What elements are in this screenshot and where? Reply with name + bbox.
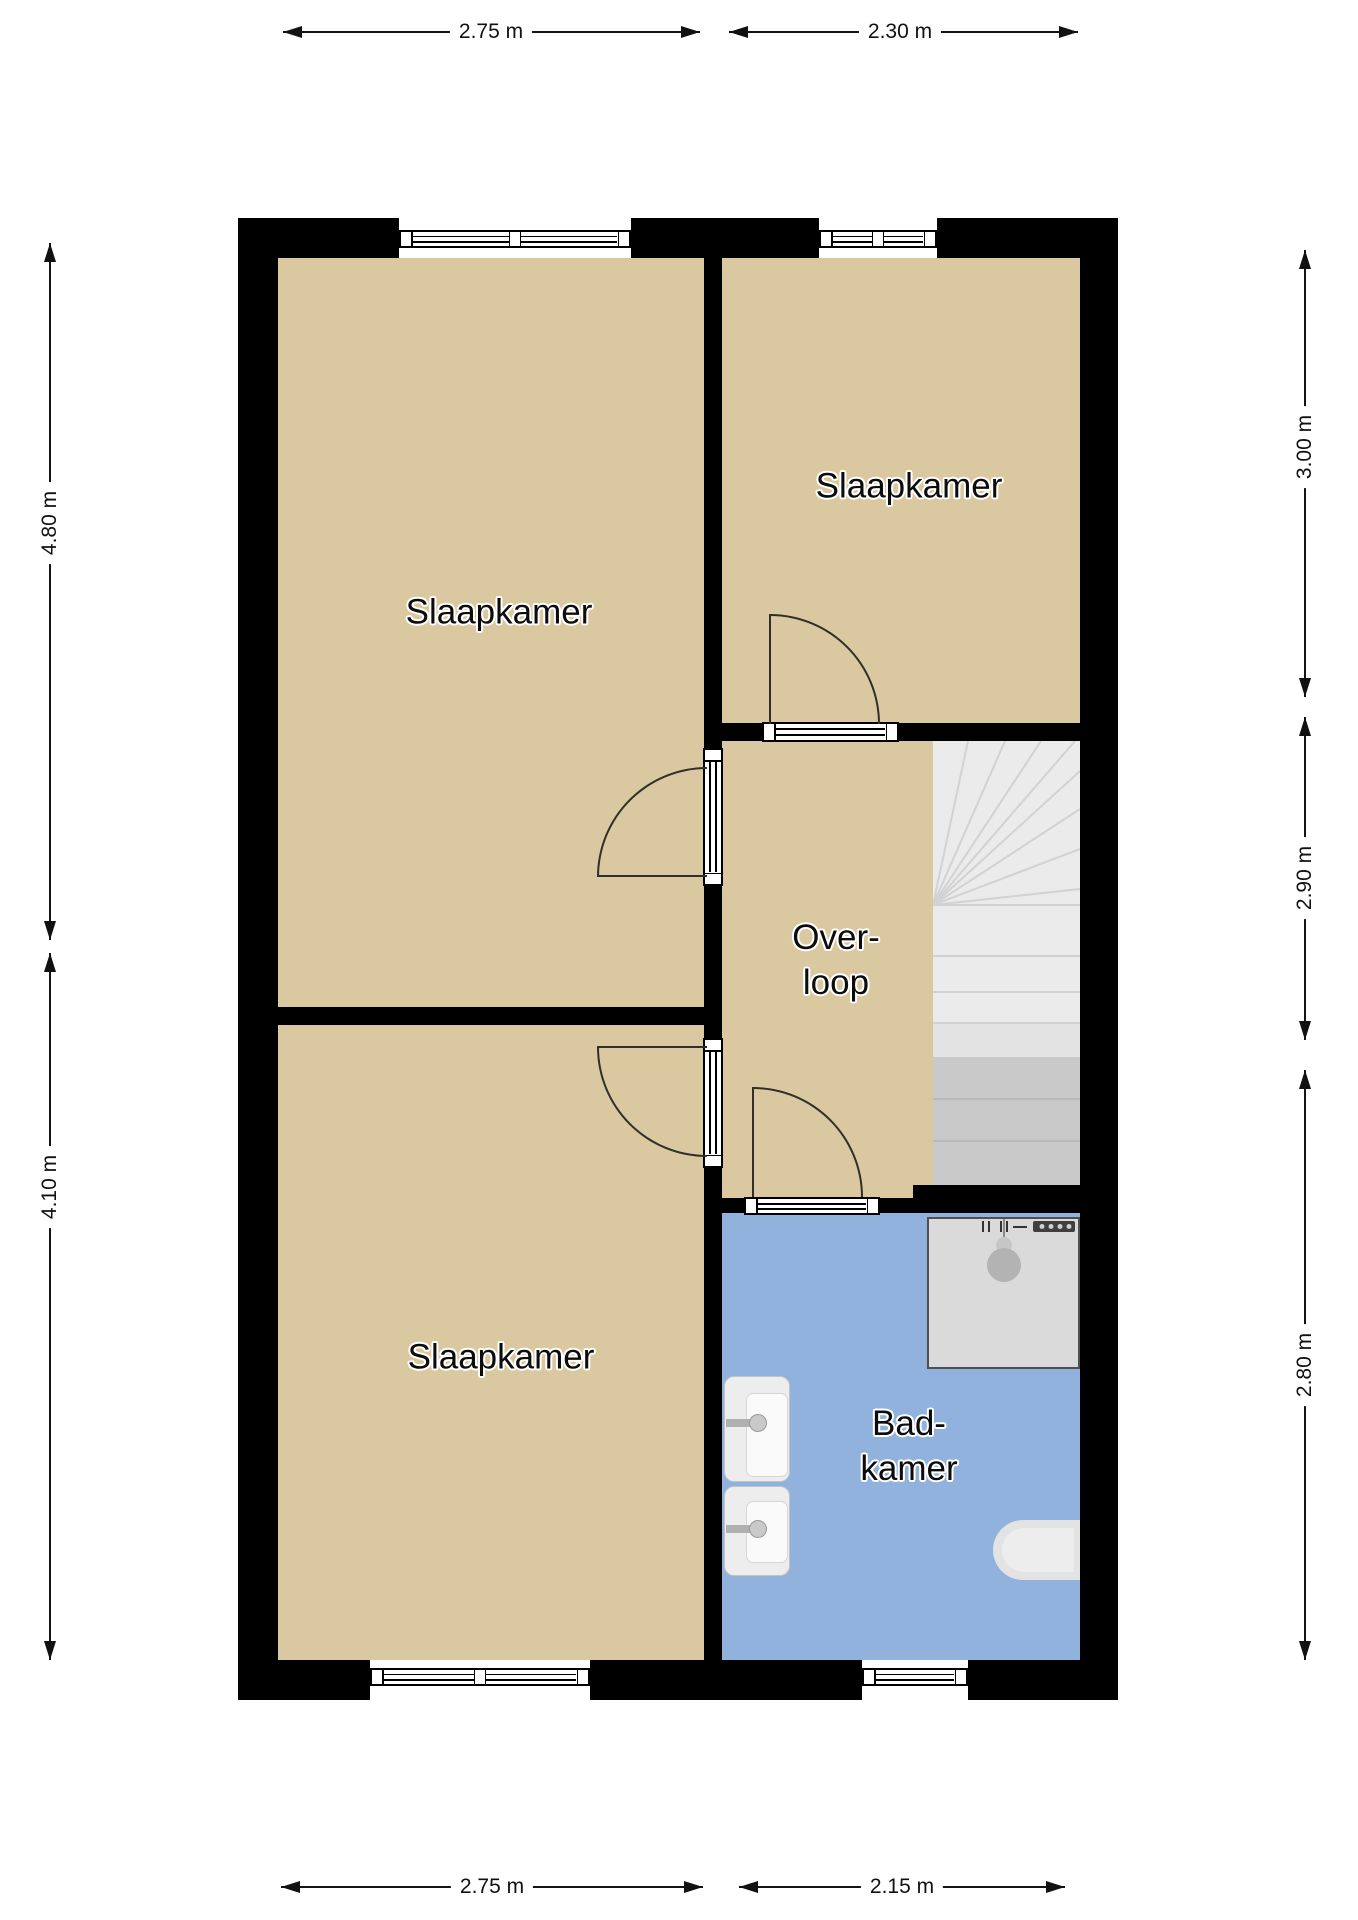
door-leaf [597,875,707,877]
shower [927,1217,1080,1369]
door-jamb [774,724,776,740]
dimension-line [49,953,51,1660]
sink [724,1486,790,1576]
door-jamb [756,1199,758,1213]
door-jamb [705,760,721,762]
door-leaf [597,1046,707,1048]
door-frame-slaapkamer-top-right [762,722,899,742]
faucet-knob-icon [749,1414,767,1432]
window-jamb [577,1670,579,1684]
door-frame-line [758,1208,866,1210]
door-jamb [886,724,888,740]
door-frame-line [709,1052,711,1154]
room-label-text: Slaapkamer [406,593,593,632]
door-frame-line [776,734,885,736]
dimension-label: 2.75 m [451,1874,533,1900]
arrow-right-icon [1059,26,1078,38]
window-jamb [618,232,620,246]
floor-plan: Slaapkamer Slaapkamer Slaapkamer Over- l… [0,0,1358,1920]
arrow-left-icon [281,1881,300,1893]
room-label-slaapkamer-bottom-left: Slaapkamer [408,1335,595,1380]
room-label-text: Bad- [860,1401,957,1446]
arrow-left-icon [739,1881,758,1893]
room-label-badkamer: Bad- kamer [860,1401,957,1491]
door-jamb [867,1199,869,1213]
window-jamb [831,232,833,246]
sink [724,1376,790,1482]
window-mullion [509,232,521,246]
shower-head-icon [929,1219,1078,1367]
arrow-down-icon [1299,678,1311,697]
wall-exterior-left [238,218,278,1700]
window-top-left [399,230,631,248]
dimension-label: 2.90 m [1292,837,1318,919]
room-label-overloop: Over- loop [792,915,880,1005]
wall-exterior-right [1080,218,1118,1700]
arrow-down-icon [1299,1641,1311,1660]
arrow-up-icon [1299,717,1311,736]
window-jamb [411,232,413,246]
staircase [933,741,1080,1185]
staircase-treads-icon [933,741,1080,1185]
arrow-down-icon [44,1641,56,1660]
room-label-slaapkamer-top-left: Slaapkamer [406,590,593,635]
room-label-text: loop [792,960,880,1005]
door-frame-line [715,1052,717,1154]
faucet-knob-icon [749,1520,767,1538]
toilet-bowl [1002,1528,1074,1572]
arrow-left-icon [283,26,302,38]
room-label-text: Slaapkamer [816,467,1003,506]
dimension-label: 3.00 m [1292,406,1318,488]
window-top-right [819,230,937,248]
door-frame-line [715,762,717,872]
room-label-slaapkamer-top-right: Slaapkamer [816,464,1003,509]
dimension-label: 2.75 m [450,19,532,45]
window-jamb [955,1670,957,1684]
door-frame-line [776,728,885,730]
door-frame-line [709,762,711,872]
arrow-down-icon [44,921,56,940]
window-jamb [382,1670,384,1684]
wall-badkamer-top-stairs [913,1185,1080,1213]
window-glazing-line [876,1679,954,1681]
room-label-text: kamer [860,1446,957,1491]
dimension-label: 4.80 m [37,482,63,564]
arrow-right-icon [684,1881,703,1893]
door-frame-badkamer [744,1197,880,1215]
window-mullion [474,1670,486,1684]
arrow-up-icon [44,243,56,262]
door-jamb [705,1050,721,1052]
toilet [993,1520,1080,1580]
dimension-label: 2.30 m [859,19,941,45]
door-frame-line [758,1203,866,1205]
dimension-line [49,243,51,940]
wall-interior-vertical [704,258,722,1660]
door-jamb [705,873,721,875]
window-jamb [924,232,926,246]
window-jamb [874,1670,876,1684]
window-mullion [872,232,884,246]
room-label-text: Over- [792,915,880,960]
arrow-down-icon [1299,1021,1311,1040]
window-badkamer [862,1668,968,1686]
arrow-left-icon [729,26,748,38]
sink-basin [746,1393,788,1477]
window-bottom-left [370,1668,590,1686]
room-label-text: Slaapkamer [408,1338,595,1377]
wall-between-bedrooms [278,1007,704,1025]
arrow-right-icon [1046,1881,1065,1893]
dimension-label: 2.80 m [1292,1324,1318,1406]
door-leaf [752,1087,754,1197]
arrow-right-icon [681,26,700,38]
wall-exterior-top [238,218,1118,258]
door-jamb [705,1155,721,1157]
window-glazing-line [876,1674,954,1676]
arrow-up-icon [1299,1070,1311,1089]
door-leaf [769,614,771,724]
dimension-label: 2.15 m [861,1874,943,1900]
arrow-up-icon [44,953,56,972]
arrow-up-icon [1299,250,1311,269]
dimension-label: 4.10 m [37,1146,63,1228]
